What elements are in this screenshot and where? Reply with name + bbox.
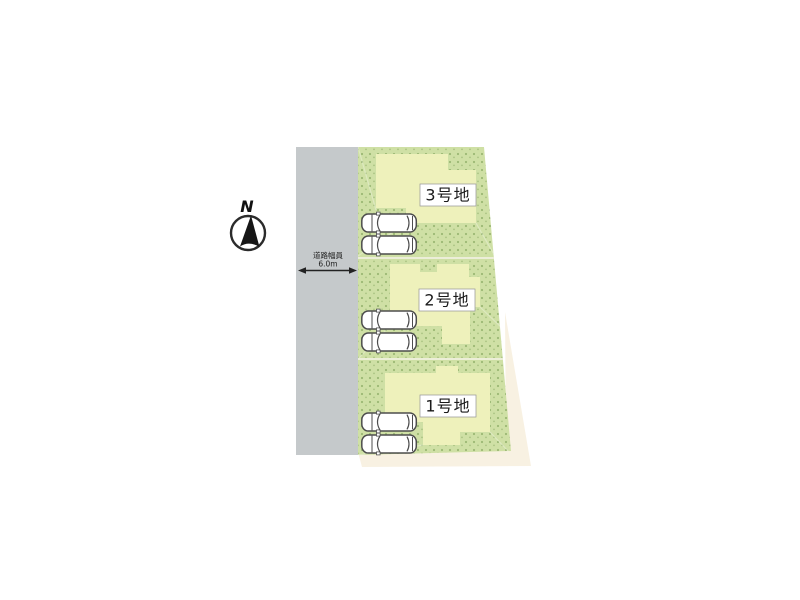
lot-label: 2号地: [424, 291, 469, 310]
lot-layout-diagram: 3号地 2号地 1号地 N 道路幅員 6.0m: [0, 0, 800, 600]
lot-label-lot2: 2号地: [419, 289, 475, 311]
lot-label-lot3: 3号地: [420, 184, 476, 206]
car-icon: [362, 212, 417, 234]
road: [296, 147, 358, 455]
car-icon: [362, 411, 417, 433]
lot-label: 1号地: [425, 397, 470, 416]
lot-label-lot1: 1号地: [420, 395, 476, 417]
road-width-label: 道路幅員: [313, 250, 343, 260]
car-icon: [362, 309, 417, 331]
lot-label: 3号地: [425, 186, 470, 205]
road-width-value: 6.0m: [318, 260, 337, 269]
north-compass: N: [231, 197, 265, 250]
car-icon: [362, 331, 417, 353]
compass-label: N: [240, 197, 254, 216]
car-icon: [362, 433, 417, 455]
site-plan-page: 3号地 2号地 1号地 N 道路幅員 6.0m: [0, 0, 800, 600]
car-icon: [362, 234, 417, 256]
